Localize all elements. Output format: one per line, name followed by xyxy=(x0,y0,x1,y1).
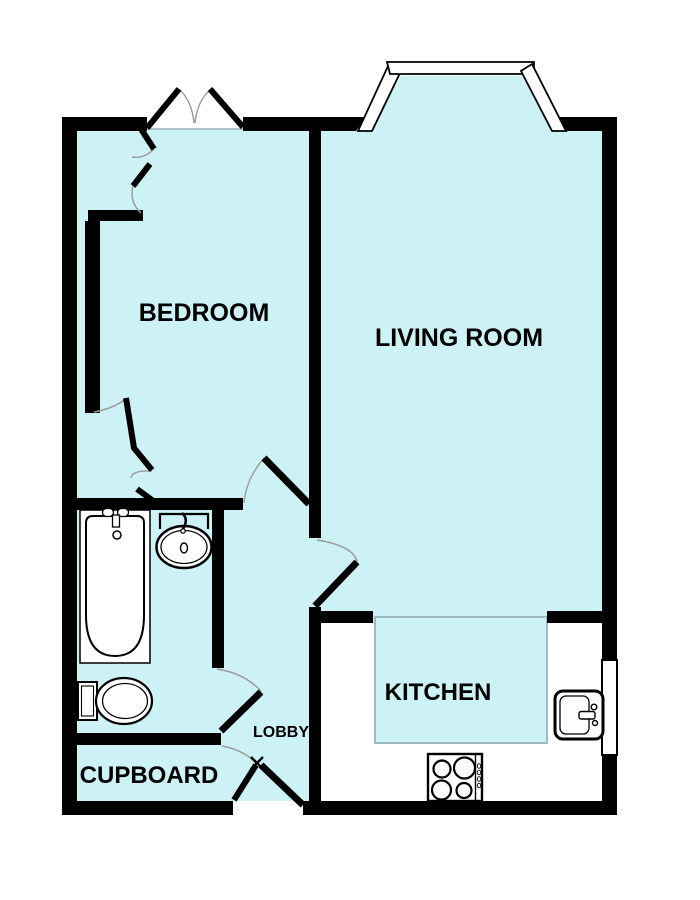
hob-burner-4 xyxy=(457,783,472,798)
sink-tap xyxy=(579,712,595,720)
wall-living-divider-upper xyxy=(309,117,321,538)
wall-top-middle xyxy=(243,117,355,131)
wall-kitchen-stub-left xyxy=(321,611,373,623)
sink-tap-knob-bottom xyxy=(593,721,598,726)
wall-bottom-right xyxy=(303,801,617,815)
cupboard-label: CUPBOARD xyxy=(80,762,219,789)
basin-tap-knob xyxy=(181,529,185,533)
wall-top-bedroom-left xyxy=(62,117,147,131)
bath xyxy=(80,509,150,664)
wall-wardrobe-front xyxy=(85,221,100,413)
hob-burner-1 xyxy=(434,761,451,778)
kitchen-label: KITCHEN xyxy=(385,679,492,706)
floor-plan: BEDROOM LIVING ROOM KITCHEN LOBBY CUPBOA… xyxy=(0,0,700,900)
floor-plan-drawing: BEDROOM LIVING ROOM KITCHEN LOBBY CUPBOA… xyxy=(0,0,700,900)
hob-burner-2 xyxy=(454,758,475,779)
living-room-label: LIVING ROOM xyxy=(375,324,543,352)
toilet xyxy=(78,678,152,724)
hob xyxy=(428,754,482,801)
bath-overflow xyxy=(113,531,121,539)
wall-cupboard-top xyxy=(62,733,221,745)
toilet-bowl xyxy=(96,678,152,724)
wall-wardrobe-stub xyxy=(88,210,143,221)
wall-right-upper xyxy=(602,131,617,660)
wall-top-right xyxy=(562,117,617,131)
basin-drain xyxy=(181,543,188,553)
wall-left-exterior xyxy=(62,117,77,815)
bedroom-label: BEDROOM xyxy=(139,299,270,327)
hob-burner-3 xyxy=(432,781,451,800)
kitchen-sink xyxy=(555,691,603,739)
sink-tap-knob-top xyxy=(591,704,597,710)
toilet-cistern xyxy=(78,682,97,720)
bath-spout xyxy=(113,515,120,527)
wall-kitchen-stub-right xyxy=(547,611,602,623)
wall-living-divider-lower xyxy=(309,607,321,801)
wall-bathroom-right xyxy=(212,498,224,668)
wall-bottom-left xyxy=(62,801,233,815)
entrance-opening xyxy=(233,801,303,815)
hob-knob-4 xyxy=(477,783,480,788)
lobby-label: LOBBY xyxy=(253,724,309,741)
hob-knob-1 xyxy=(477,764,480,769)
hob-knob-2 xyxy=(477,770,480,775)
hob-knob-3 xyxy=(477,777,480,782)
bay-window-top-pane xyxy=(387,62,534,74)
bath-tap-left xyxy=(103,509,114,517)
